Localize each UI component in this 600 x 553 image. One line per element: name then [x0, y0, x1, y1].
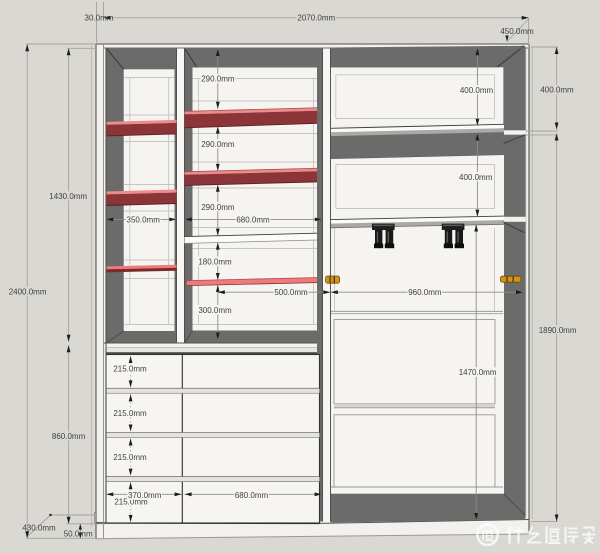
svg-text:400.0mm: 400.0mm — [460, 86, 494, 95]
svg-text:215.0mm: 215.0mm — [113, 453, 147, 462]
svg-text:960.0mm: 960.0mm — [408, 288, 442, 297]
svg-text:680.0mm: 680.0mm — [235, 491, 269, 500]
svg-text:680.0mm: 680.0mm — [236, 215, 270, 224]
svg-text:180.0mm: 180.0mm — [198, 257, 232, 266]
svg-text:1890.0mm: 1890.0mm — [539, 326, 577, 335]
svg-text:430.0mm: 430.0mm — [22, 523, 56, 532]
svg-text:450.0mm: 450.0mm — [500, 27, 534, 36]
svg-text:50.0mm: 50.0mm — [64, 530, 93, 539]
svg-text:500.0mm: 500.0mm — [274, 288, 308, 297]
svg-text:215.0mm: 215.0mm — [113, 365, 147, 374]
svg-text:300.0mm: 300.0mm — [198, 306, 232, 315]
svg-text:2400.0mm: 2400.0mm — [9, 287, 47, 296]
svg-text:290.0mm: 290.0mm — [201, 75, 235, 84]
svg-text:400.0mm: 400.0mm — [459, 173, 493, 182]
svg-text:290.0mm: 290.0mm — [201, 140, 235, 149]
svg-text:30.0mm: 30.0mm — [85, 14, 114, 23]
svg-text:1430.0mm: 1430.0mm — [49, 192, 87, 201]
svg-text:2070.0mm: 2070.0mm — [297, 14, 335, 23]
svg-text:860.0mm: 860.0mm — [52, 432, 86, 441]
svg-text:215.0mm: 215.0mm — [113, 409, 147, 418]
svg-text:350.0mm: 350.0mm — [127, 215, 161, 224]
svg-text:290.0mm: 290.0mm — [201, 203, 235, 212]
svg-text:400.0mm: 400.0mm — [540, 85, 574, 94]
svg-text:1470.0mm: 1470.0mm — [459, 368, 497, 377]
svg-text:370.0mm: 370.0mm — [128, 491, 162, 500]
